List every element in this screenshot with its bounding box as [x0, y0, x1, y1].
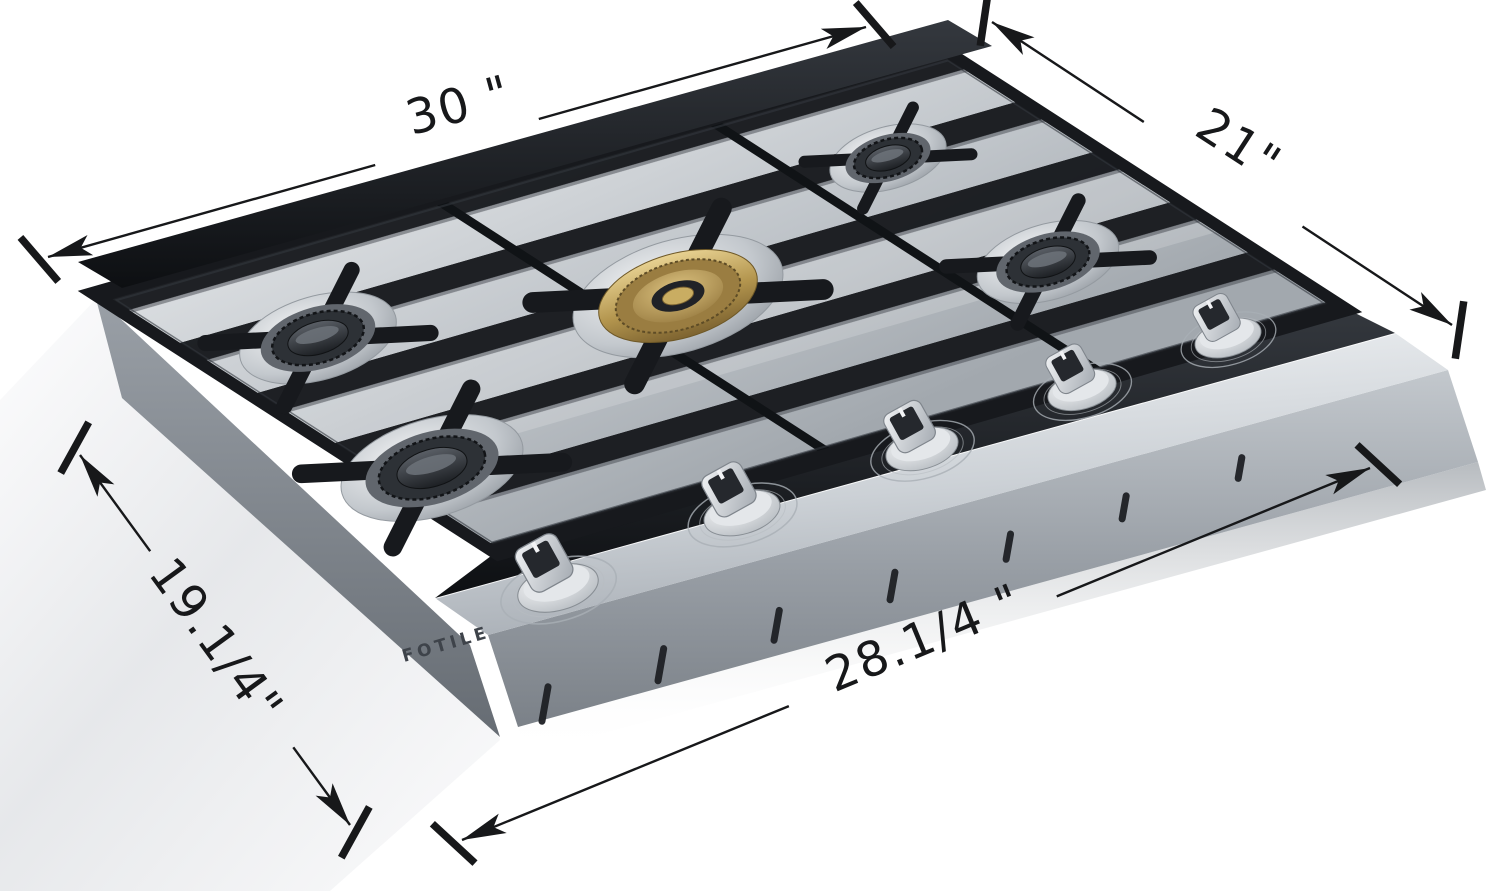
dimension-label-depth: 21": [1186, 97, 1291, 193]
cooktop-illustration: FOTILE 30 "21"19.1/4"28.1/4 ": [0, 0, 1500, 891]
dimension-tick: [432, 824, 475, 863]
dimension-arrowhead: [992, 22, 1035, 55]
dimension-arrowhead: [1409, 292, 1452, 325]
dimension-tick: [20, 237, 58, 281]
dimension-label-width: 30 ": [400, 64, 518, 146]
dimension-tick: [1455, 301, 1463, 358]
dimension-tick: [980, 0, 988, 46]
dimension-arrowhead: [462, 814, 507, 840]
dimension-tick: [856, 3, 894, 47]
product-dimension-diagram: FOTILE 30 "21"19.1/4"28.1/4 ": [0, 0, 1500, 891]
